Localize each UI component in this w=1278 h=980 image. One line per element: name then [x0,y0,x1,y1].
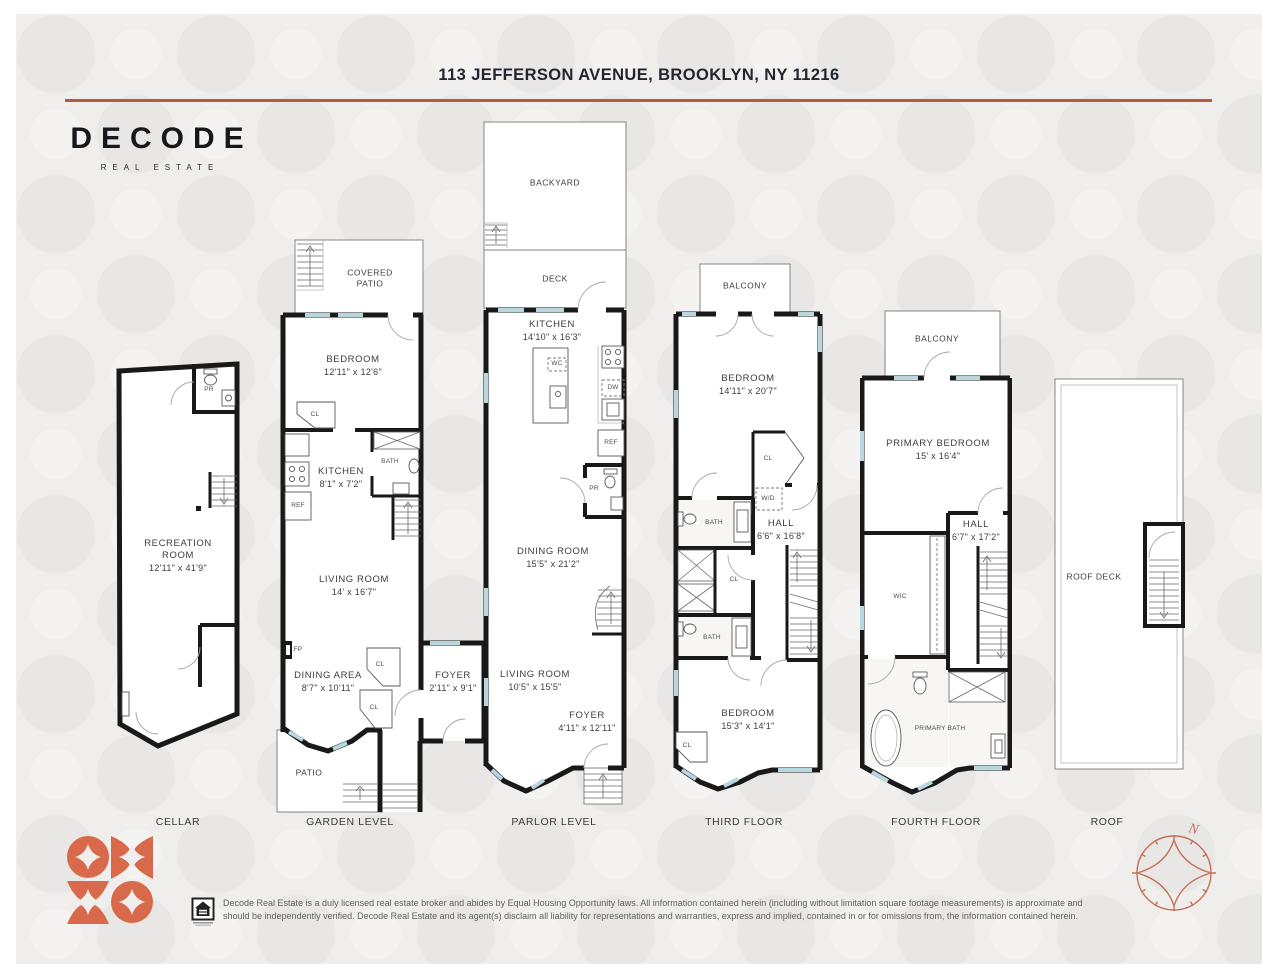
room-label-covered-patio: COVERED PATIO [339,267,401,288]
room-name: PRIMARY BATH [915,725,965,733]
room-label-bath: BATH [381,458,399,466]
sheet-content: 113 JEFFERSON AVENUE, BROOKLYN, NY 11216… [0,0,1278,980]
room-label-dining-area: DINING AREA8'7" x 10'11" [294,670,362,694]
room-label-bedroom: BEDROOM12'11" x 12'6" [324,354,382,378]
floorplan-sheet: 113 JEFFERSON AVENUE, BROOKLYN, NY 11216… [0,0,1278,980]
room-name: CL [764,455,773,463]
room-name: BALCONY [915,334,959,345]
room-label-patio: PATIO [296,768,323,779]
floorplan-fourth-floor: BALCONY PRIMARY BEDROOM15' x 16'4" HALL6… [860,306,1012,800]
room-dims: 8'7" x 10'11" [294,683,362,694]
room-label-hall: HALL6'6" x 16'8" [757,518,805,542]
room-name: CL [376,661,385,669]
parlor-level-drawing [480,118,630,808]
room-dims: 4'11" x 12'11" [558,723,615,734]
compass-north-label: N [1186,821,1200,838]
room-name: BATH [705,519,723,527]
room-dims: 6'7" x 17'2" [952,532,1000,543]
room-name: KITCHEN [318,466,364,478]
room-label-foyer: FOYER2'11" x 9'1" [429,670,476,694]
room-dims: 14' x 16'7" [319,587,389,598]
room-name: W/D [761,495,774,503]
room-label-foyer: FOYER4'11" x 12'11" [558,710,615,734]
room-label-primary-bath: PRIMARY BATH [915,725,965,733]
room-name: KITCHEN [523,319,582,331]
garden-level-drawing [275,238,490,818]
room-label-closet-a: CL [764,455,773,463]
room-name: BACKYARD [530,178,580,189]
room-name: LIVING ROOM [319,574,389,586]
room-label-bath-a: BATH [705,519,723,527]
structural-column [196,506,201,511]
room-label-recreation: RECREATION ROOM 12'11" x 41'9" [131,538,226,574]
room-label-bedroom-rear: BEDROOM15'3" x 14'1" [721,708,774,732]
room-name: DINING ROOM [517,546,589,558]
room-name: COVERED PATIO [339,267,401,288]
room-name: PR [589,485,598,493]
room-name: BATH [703,634,721,642]
room-label-kitchen: KITCHEN8'1" x 7'2" [318,466,364,490]
brand-wordmark: DECODE [57,122,257,156]
room-label-roof-deck: ROOF DECK [1066,572,1121,583]
room-label-ref: REF [291,502,305,510]
room-name: REF [604,439,618,447]
room-dims: 12'11" x 41'9" [131,563,226,574]
floorplan-garden-level: COVERED PATIO BEDROOM12'11" x 12'6" CL K… [275,238,490,818]
room-name: ROOF DECK [1066,572,1121,583]
room-dims: 15' x 16'4" [886,451,990,462]
room-dims: 2'11" x 9'1" [429,683,476,694]
caption-fourth: FOURTH FLOOR [861,816,1011,828]
room-name: DECK [542,274,568,285]
room-label-balcony: BALCONY [915,334,959,345]
room-label-kitchen: KITCHEN14'10" x 16'3" [523,319,582,343]
room-name: BATH [381,458,399,466]
room-label-balcony: BALCONY [723,281,767,292]
caption-cellar: CELLAR [103,816,253,828]
room-name: BALCONY [723,281,767,292]
compass-icon: N [1124,816,1224,920]
room-name: CL [370,704,379,712]
page-title: 113 JEFFERSON AVENUE, BROOKLYN, NY 11216 [0,66,1278,85]
room-label-dining: DINING ROOM15'5" x 21'2" [517,546,589,570]
room-label-bath-b: BATH [703,634,721,642]
floorplan-third-floor: BALCONY BEDROOM14'11" x 20'7" CL W/D BAT… [672,260,824,800]
equal-housing-icon [191,897,215,927]
room-label-closet-b: CL [376,661,385,669]
room-dims: 15'3" x 14'1" [721,721,774,732]
room-label-hall: HALL6'7" x 17'2" [952,519,1000,543]
brand-tagline: REAL ESTATE [57,163,257,172]
room-dims: 14'10" x 16'3" [523,332,582,343]
decode-logo-mark-icon [66,835,154,925]
room-name: PRIMARY BEDROOM [886,438,990,450]
caption-garden: GARDEN LEVEL [275,816,425,828]
room-label-living: LIVING ROOM14' x 16'7" [319,574,389,598]
room-name: HALL [952,519,1000,531]
room-label-pr: PR [204,386,213,394]
floorplan-parlor-level: BACKYARD DECK KITCHEN14'10" x 16'3" WC D… [480,118,630,808]
room-name: DW [607,384,618,392]
room-name: FOYER [429,670,476,682]
room-name: PATIO [296,768,323,779]
room-label-primary-bedroom: PRIMARY BEDROOM15' x 16'4" [886,438,990,462]
room-label-deck: DECK [542,274,568,285]
room-label-pr: PR [589,485,598,493]
floorplan-cellar: PR RECREATION ROOM 12'11" x 41'9" [112,360,242,760]
room-name: BEDROOM [721,708,774,720]
room-dims: 6'6" x 16'8" [757,531,805,542]
room-dims: 14'11" x 20'7" [719,386,777,397]
room-dims: 8'1" x 7'2" [318,479,364,490]
room-label-backyard: BACKYARD [530,178,580,189]
room-label-wc: WC [551,360,562,368]
room-dims: 15'5" x 21'2" [517,559,589,570]
room-name: LIVING ROOM [500,669,570,681]
room-name: RECREATION ROOM [131,538,226,562]
room-label-closet-c: CL [683,742,692,750]
accent-divider [65,99,1212,102]
room-name: WIC [893,593,906,601]
room-label-living: LIVING ROOM10'5" x 15'5" [500,669,570,693]
room-label-dw: DW [607,384,618,392]
disclaimer-text: Decode Real Estate is a duly licensed re… [223,897,1091,922]
room-name: WC [551,360,562,368]
room-name: CL [683,742,692,750]
linen-closets [678,548,715,613]
room-dims: 10'5" x 15'5" [500,682,570,693]
room-name: FOYER [558,710,615,722]
room-label-ref: REF [604,439,618,447]
room-name: PR [204,386,213,394]
room-label-bedroom-front: BEDROOM14'11" x 20'7" [719,373,777,397]
room-name: FP [294,646,303,654]
room-label-fp: FP [294,646,303,654]
room-label-closet-c: CL [370,704,379,712]
room-label-wic: WIC [893,593,906,601]
room-dims: 12'11" x 12'6" [324,367,382,378]
floorplan-roof: ROOF DECK [1052,376,1186,772]
stair-bulkhead [1145,524,1183,626]
room-label-closet-b: CL [730,576,739,584]
caption-parlor: PARLOR LEVEL [479,816,629,828]
room-name: BEDROOM [324,354,382,366]
room-label-wd: W/D [761,495,774,503]
room-label-closet-a: CL [311,411,320,419]
room-name: HALL [757,518,805,530]
fireplace [283,641,292,659]
room-name: BEDROOM [719,373,777,385]
brand-logo: DECODE REAL ESTATE [57,122,257,172]
room-name: DINING AREA [294,670,362,682]
room-name: CL [730,576,739,584]
room-name: CL [311,411,320,419]
caption-third: THIRD FLOOR [669,816,819,828]
room-name: REF [291,502,305,510]
